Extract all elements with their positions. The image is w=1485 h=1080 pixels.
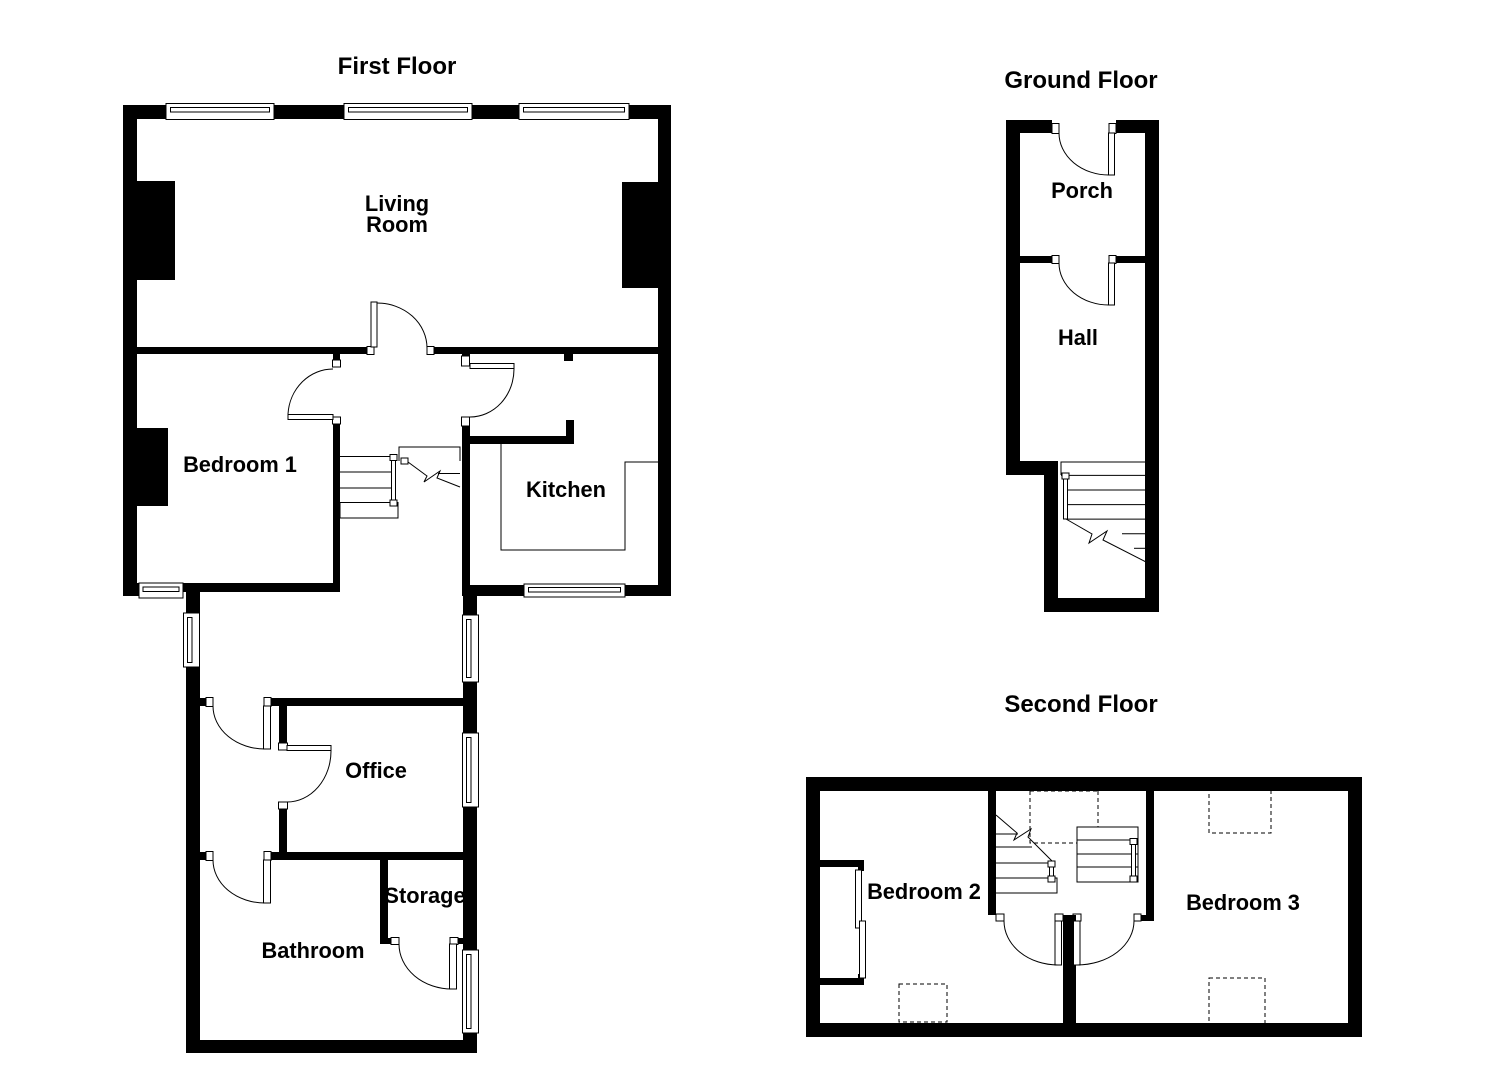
svg-text:First Floor: First Floor [338, 53, 457, 80]
svg-text:Hall: Hall [1058, 325, 1098, 350]
svg-text:Bedroom 3: Bedroom 3 [1186, 890, 1300, 915]
svg-text:Bedroom 1: Bedroom 1 [183, 452, 297, 477]
svg-text:Ground Floor: Ground Floor [1004, 67, 1157, 94]
svg-text:Bedroom 2: Bedroom 2 [867, 879, 981, 904]
svg-text:Office: Office [345, 758, 407, 783]
svg-text:Storage: Storage [384, 883, 465, 908]
svg-text:Room: Room [366, 212, 428, 237]
svg-text:Porch: Porch [1051, 178, 1113, 203]
svg-text:Bathroom: Bathroom [262, 938, 365, 963]
svg-text:Second Floor: Second Floor [1004, 691, 1157, 718]
svg-text:Kitchen: Kitchen [526, 477, 606, 502]
